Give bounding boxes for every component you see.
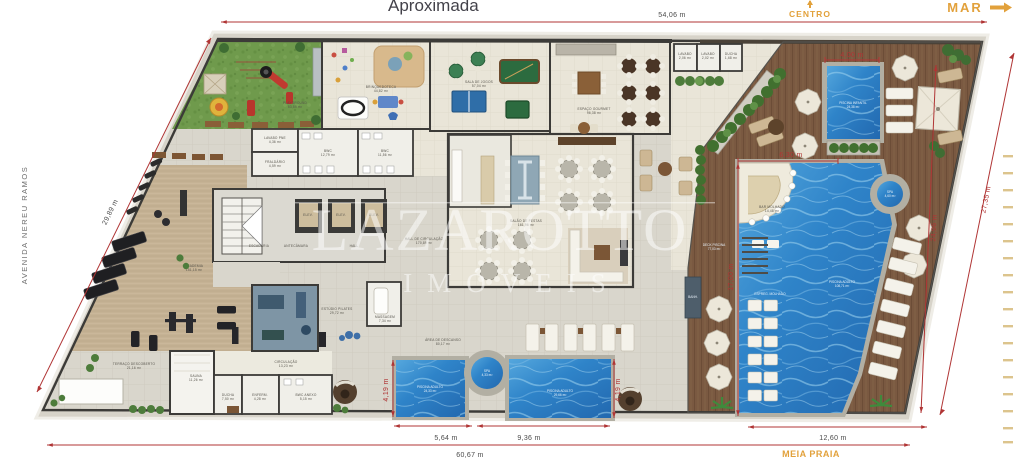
svg-text:5,64 m: 5,64 m — [434, 435, 457, 442]
svg-text:4,36 m²: 4,36 m² — [269, 140, 281, 144]
svg-text:12,60 m: 12,60 m — [819, 435, 846, 442]
svg-text:29,66 m²: 29,66 m² — [554, 393, 567, 397]
svg-text:4,59 m²: 4,59 m² — [269, 164, 281, 168]
svg-text:17,00 m: 17,00 m — [728, 263, 735, 290]
svg-text:151,15 m²: 151,15 m² — [186, 268, 202, 272]
svg-text:7,50 m²: 7,50 m² — [222, 397, 234, 401]
svg-text:21,16 m²: 21,16 m² — [127, 366, 141, 370]
svg-text:4,33 m²: 4,33 m² — [482, 373, 493, 377]
svg-text:57,04 m²: 57,04 m² — [472, 84, 486, 88]
svg-text:MAR: MAR — [947, 0, 983, 15]
svg-text:60,67 m: 60,67 m — [456, 452, 483, 459]
svg-text:12,79 m²: 12,79 m² — [321, 153, 335, 157]
svg-text:2,06 m²: 2,06 m² — [679, 56, 691, 60]
svg-text:77,03 m²: 77,03 m² — [708, 247, 721, 251]
svg-text:4,60 m²: 4,60 m² — [885, 194, 896, 198]
svg-text:13,23 m²: 13,23 m² — [279, 364, 293, 368]
svg-text:29,72 m²: 29,72 m² — [330, 311, 344, 315]
svg-text:IMÓVEIS: IMÓVEIS — [403, 268, 621, 298]
svg-text:54,06 m: 54,06 m — [658, 12, 685, 19]
svg-text:44,82 m²: 44,82 m² — [374, 89, 388, 93]
svg-text:11,26 m²: 11,26 m² — [189, 378, 203, 382]
svg-text:5,15 m²: 5,15 m² — [300, 397, 312, 401]
svg-text:Aproximada: Aproximada — [388, 0, 479, 15]
svg-text:2,02 m²: 2,02 m² — [702, 56, 714, 60]
svg-text:4,19 m: 4,19 m — [615, 378, 622, 401]
svg-text:BANH.: BANH. — [688, 295, 698, 299]
svg-text:53,59 m²: 53,59 m² — [288, 105, 302, 109]
svg-text:1,68 m²: 1,68 m² — [725, 56, 737, 60]
svg-text:ESPREG. MOLHADO: ESPREG. MOLHADO — [754, 292, 786, 296]
svg-text:96,38 m²: 96,38 m² — [587, 111, 601, 115]
svg-text:108,71 m²: 108,71 m² — [835, 284, 849, 288]
svg-text:24,96 m: 24,96 m — [930, 214, 938, 242]
svg-text:9,36 m: 9,36 m — [517, 435, 540, 442]
svg-text:11,56 m²: 11,56 m² — [378, 153, 392, 157]
svg-text:4,00 m: 4,00 m — [840, 52, 863, 59]
svg-text:LAZAROTTO: LAZAROTTO — [312, 197, 689, 263]
svg-text:80,17 m²: 80,17 m² — [436, 342, 450, 346]
svg-text:6,30 m: 6,30 m — [779, 152, 802, 159]
svg-text:MEIA PRAIA: MEIA PRAIA — [782, 449, 840, 459]
svg-text:AVENIDA NEREU RAMOS: AVENIDA NEREU RAMOS — [20, 166, 29, 284]
svg-text:24,38 m²: 24,38 m² — [847, 105, 860, 109]
svg-text:ANTECÂMARA: ANTECÂMARA — [284, 244, 309, 248]
svg-text:24,33 m²: 24,33 m² — [424, 389, 437, 393]
svg-text:4,28 m²: 4,28 m² — [254, 397, 266, 401]
svg-text:ESCADARIA: ESCADARIA — [249, 244, 270, 248]
svg-text:CENTRO: CENTRO — [789, 9, 831, 19]
svg-text:14,48 m²: 14,48 m² — [765, 209, 779, 213]
svg-text:4,19 m: 4,19 m — [383, 378, 390, 401]
svg-text:7,34 m²: 7,34 m² — [379, 319, 391, 323]
